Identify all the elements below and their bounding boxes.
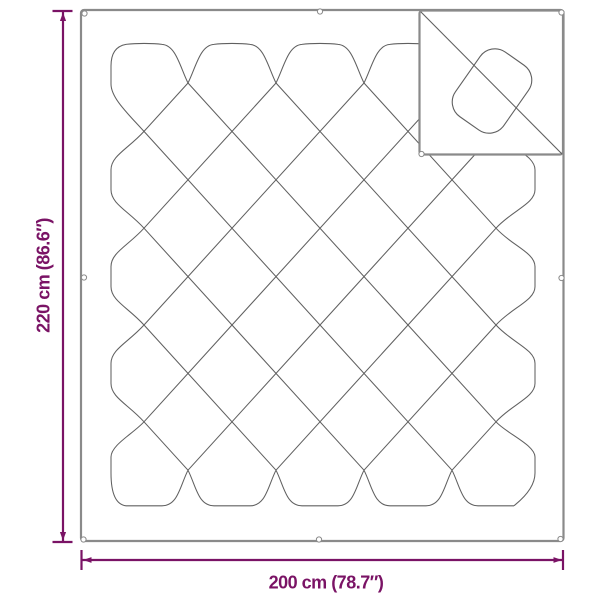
- svg-text:200 cm (78.7″): 200 cm (78.7″): [269, 573, 384, 593]
- svg-text:220 cm (86.6″): 220 cm (86.6″): [34, 218, 54, 333]
